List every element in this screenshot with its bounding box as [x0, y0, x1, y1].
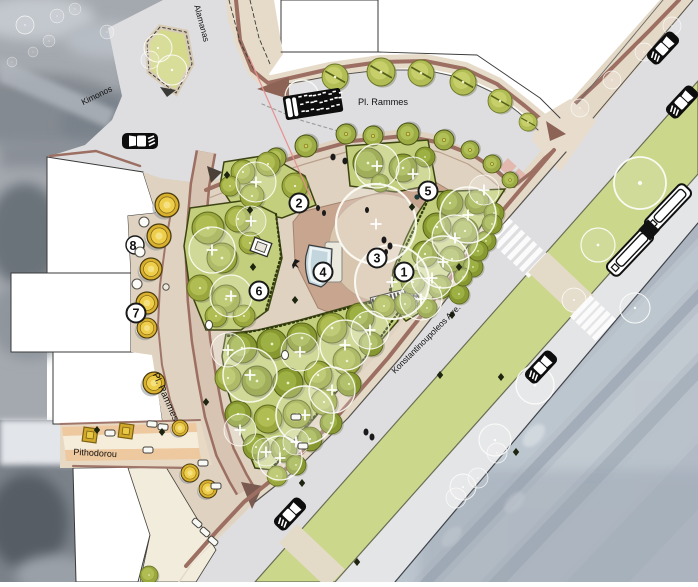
svg-text:3: 3: [374, 251, 381, 265]
svg-text:6: 6: [256, 284, 263, 298]
svg-text:8: 8: [130, 239, 137, 253]
svg-text:7: 7: [133, 306, 140, 320]
svg-text:2: 2: [296, 196, 303, 210]
svg-text:1: 1: [401, 265, 408, 279]
svg-text:4: 4: [320, 265, 327, 279]
svg-text:5: 5: [425, 184, 432, 198]
svg-text:Pl. Rammes: Pl. Rammes: [358, 97, 408, 107]
